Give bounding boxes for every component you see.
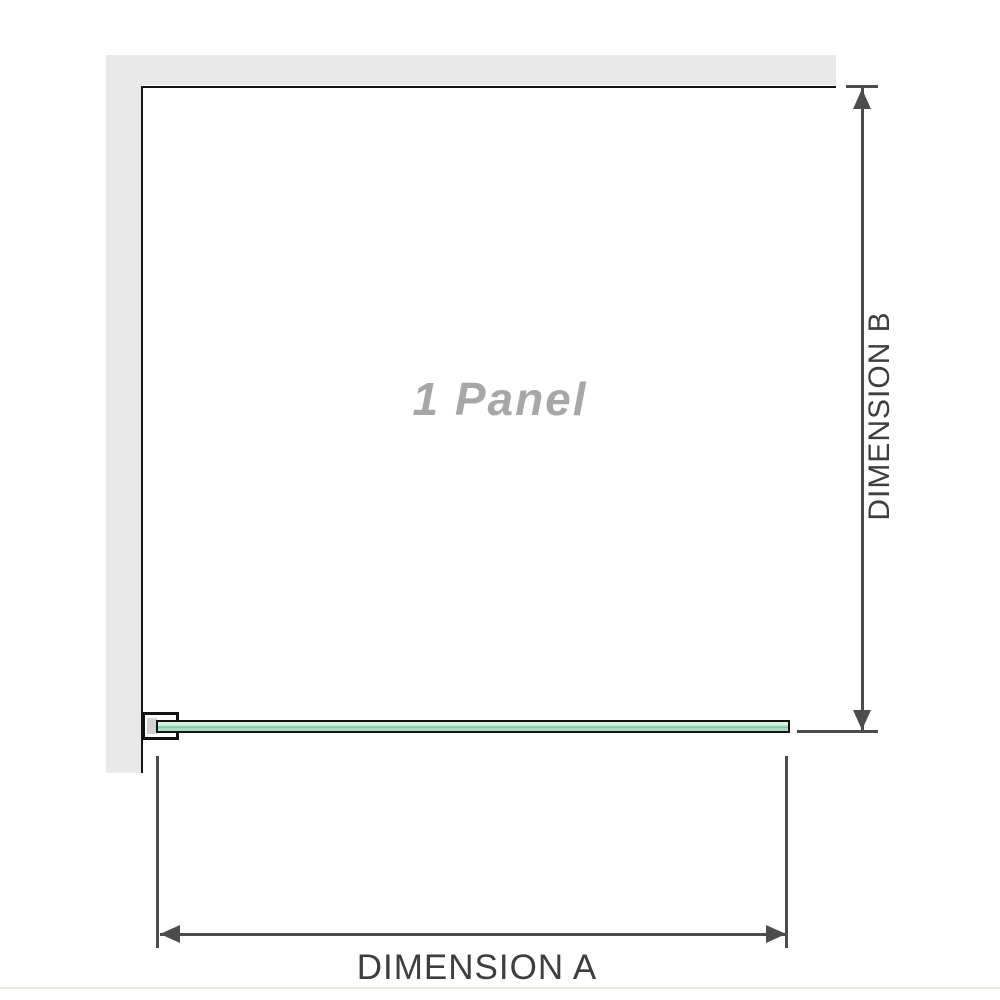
diagram-canvas: 1 Panel DIMENSION B DIMENSION A [0, 0, 1000, 1000]
panel-top-border [141, 86, 836, 88]
bottom-separator [0, 987, 1000, 989]
dimension-b-bottom-tick [797, 730, 878, 733]
panel-label: 1 Panel [412, 372, 587, 426]
panel-left-border [141, 86, 143, 773]
dimension-a-line [160, 933, 786, 936]
glass-panel [156, 720, 790, 733]
arrow-left-icon [160, 925, 180, 943]
arrow-right-icon [766, 925, 786, 943]
dimension-b-label: DIMENSION B [863, 311, 897, 520]
wall-left [106, 55, 141, 773]
arrow-up-icon [853, 89, 871, 109]
dimension-a-label: DIMENSION A [357, 948, 597, 988]
wall-top [106, 55, 836, 85]
dimension-a-extension-right [785, 756, 788, 948]
arrow-down-icon [853, 710, 871, 730]
dimension-a-extension-left [156, 756, 159, 948]
